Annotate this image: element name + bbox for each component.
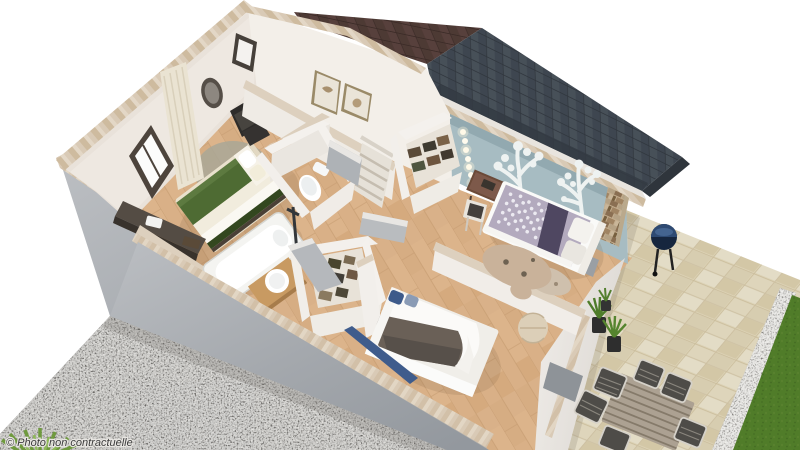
svg-text:© Photo non contractuelle: © Photo non contractuelle: [6, 437, 133, 449]
